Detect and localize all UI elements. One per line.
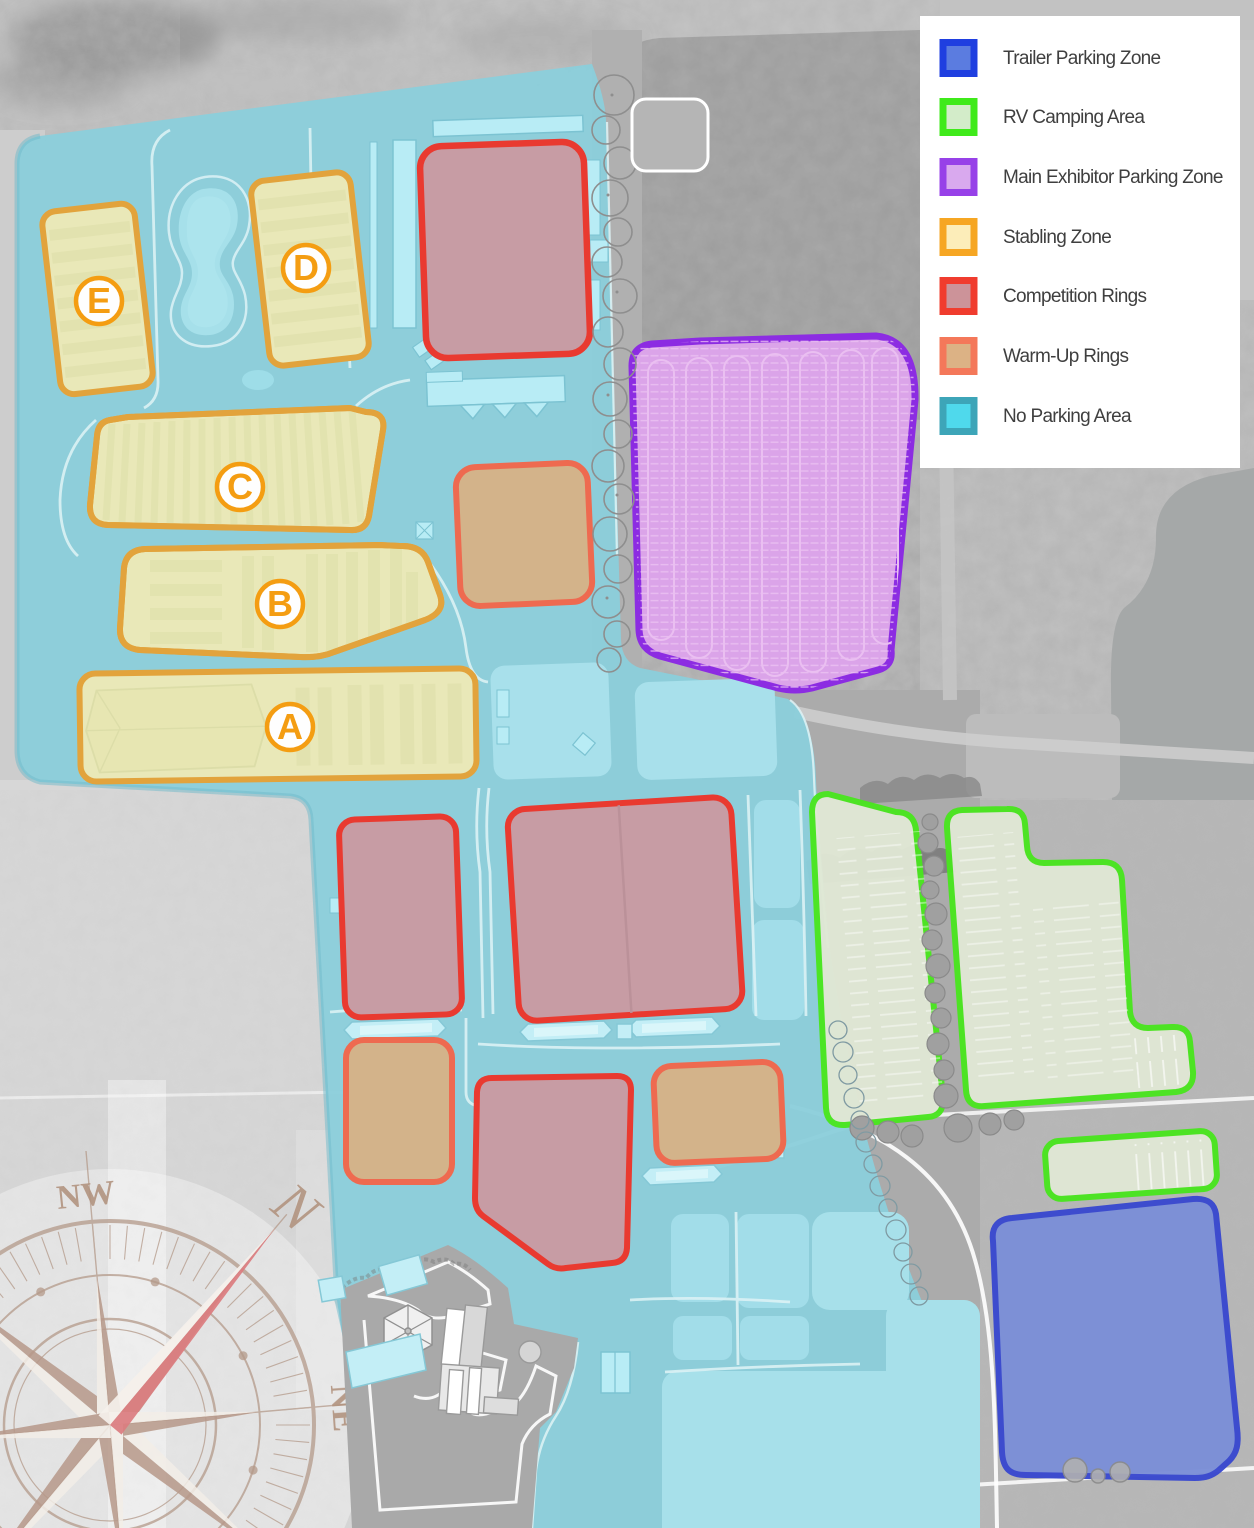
svg-text:Warm-Up Rings: Warm-Up Rings [1003,346,1129,367]
svg-text:No Parking Area: No Parking Area [1003,406,1132,427]
svg-text:NW: NW [55,1174,117,1217]
svg-text:D: D [293,247,319,288]
svg-text:Main Exhibitor Parking Zone: Main Exhibitor Parking Zone [1003,167,1223,188]
svg-text:E: E [87,280,111,321]
svg-text:B: B [267,583,293,624]
svg-text:A: A [277,706,303,747]
svg-text:RV Camping Area: RV Camping Area [1003,107,1145,128]
svg-text:Stabling Zone: Stabling Zone [1003,227,1111,248]
svg-text:Trailer Parking Zone: Trailer Parking Zone [1003,48,1161,69]
svg-text:Competition Rings: Competition Rings [1003,286,1147,307]
svg-text:C: C [227,466,253,507]
